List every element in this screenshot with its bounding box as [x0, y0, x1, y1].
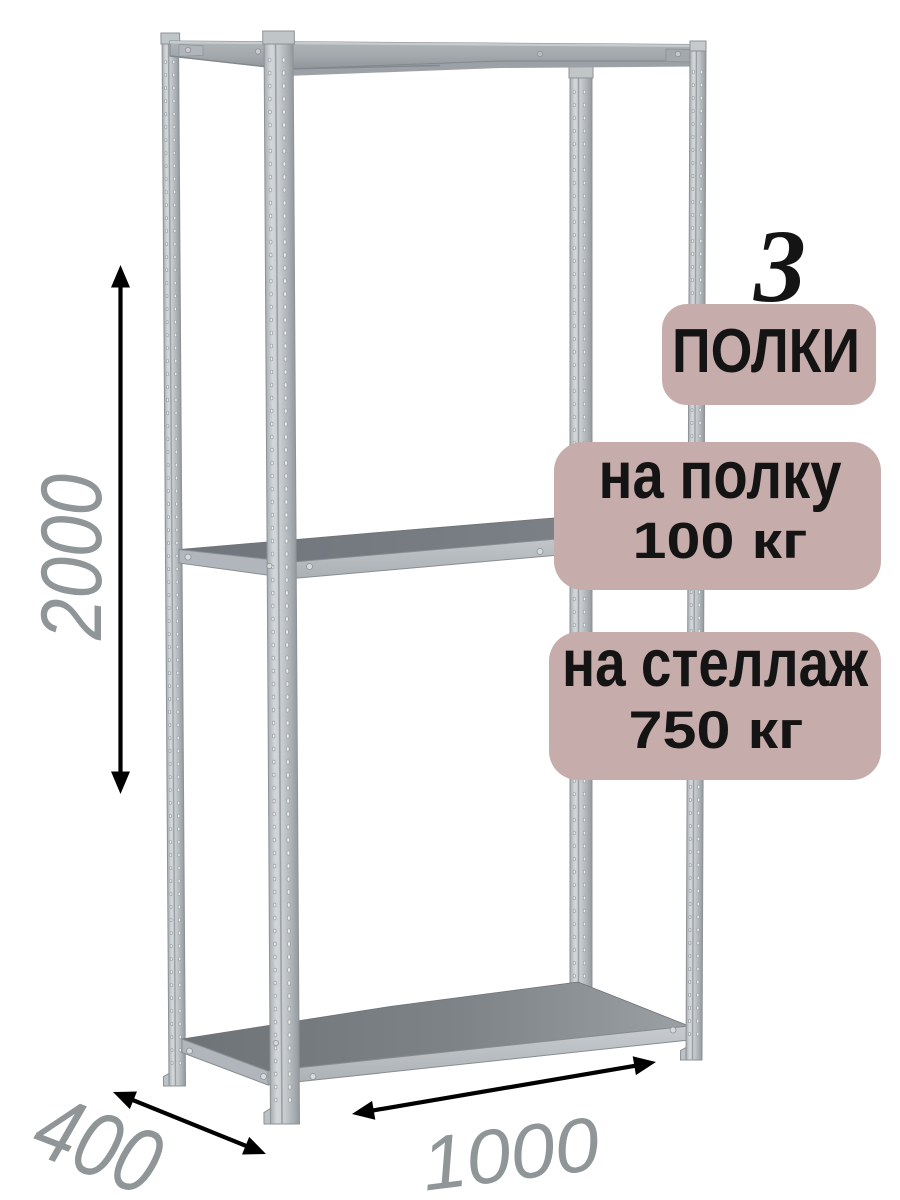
- svg-text:на стеллаж: на стеллаж: [562, 626, 869, 701]
- svg-text:ПОЛКИ: ПОЛКИ: [672, 317, 860, 386]
- svg-text:1000: 1000: [417, 1101, 604, 1200]
- svg-text:на полку: на полку: [599, 438, 842, 513]
- svg-text:400: 400: [21, 1075, 175, 1200]
- svg-text:2000: 2000: [24, 474, 120, 641]
- svg-text:100 кг: 100 кг: [633, 512, 808, 569]
- svg-text:750 кг: 750 кг: [629, 701, 804, 760]
